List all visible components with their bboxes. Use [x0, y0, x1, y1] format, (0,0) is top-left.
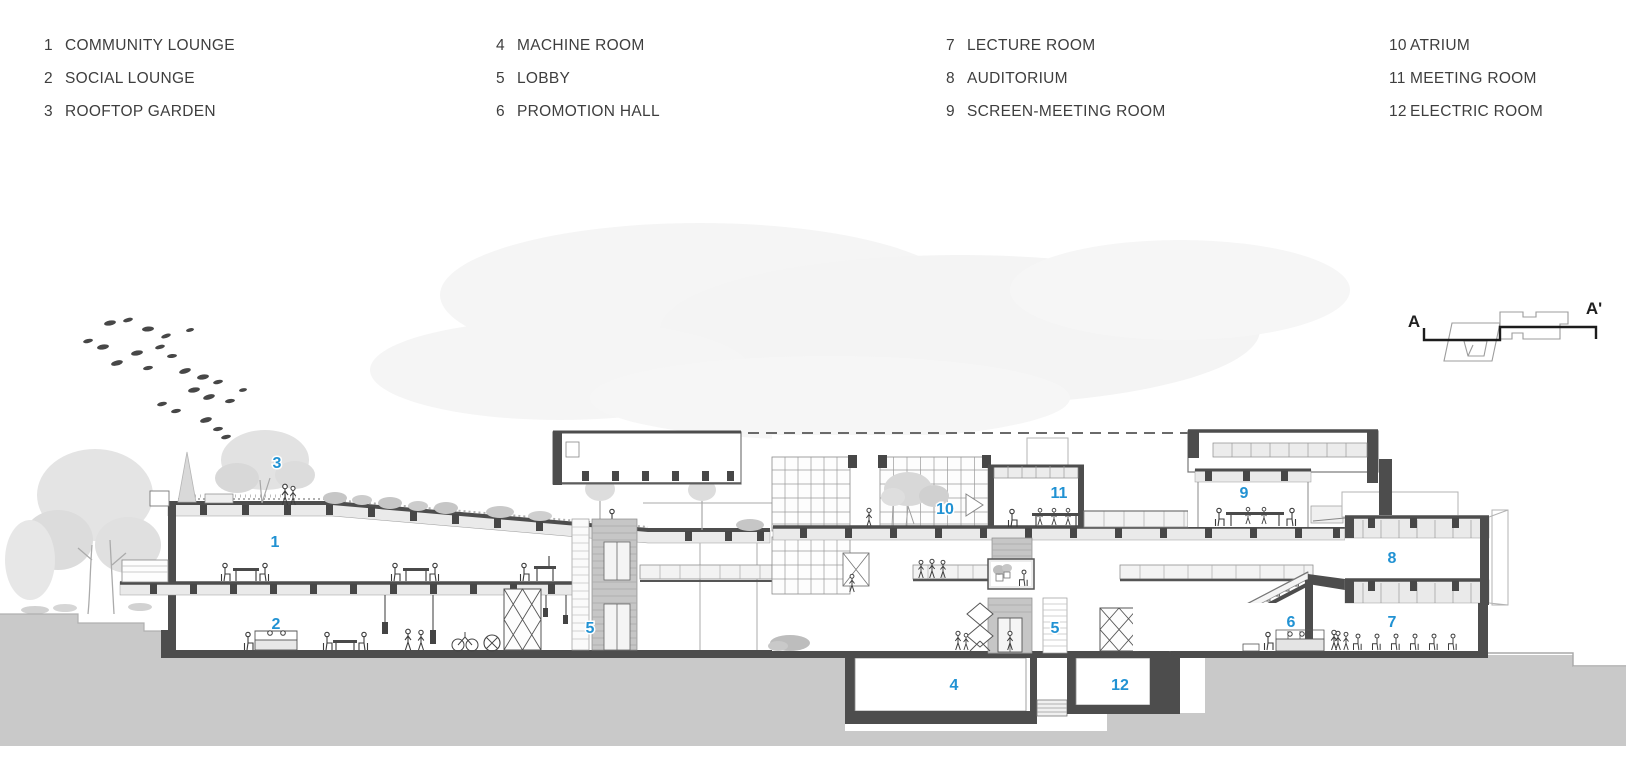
legend-item-number: 6 — [496, 95, 517, 128]
key-plan: A A' — [1408, 299, 1602, 361]
room-number-label: 11 — [1051, 485, 1068, 502]
sky-clouds — [370, 223, 1350, 440]
legend-item: 3ROOFTOP GARDEN — [44, 95, 235, 128]
legend-item-number: 12 — [1389, 95, 1410, 128]
basement — [845, 655, 1180, 724]
room-number-label: 2 — [272, 616, 281, 633]
legend-item: 10ATRIUM — [1389, 29, 1543, 62]
legend-item-number: 9 — [946, 95, 967, 128]
legend-item-number: 8 — [946, 62, 967, 95]
legend-item-label: AUDITORIUM — [967, 62, 1068, 95]
legend-item: 1COMMUNITY LOUNGE — [44, 29, 235, 62]
legend-item-label: SCREEN-MEETING ROOM — [967, 95, 1166, 128]
pine-tree — [178, 452, 196, 502]
birds-flock-icon — [83, 317, 248, 440]
legend-item-number: 10 — [1389, 29, 1410, 62]
legend-item-number: 1 — [44, 29, 65, 62]
legend-item-label: COMMUNITY LOUNGE — [65, 29, 235, 62]
room-number-label: 4 — [950, 677, 959, 694]
building-section-drawing: A A' 3125101198675412 — [0, 0, 1626, 766]
left-exterior-wall — [168, 505, 176, 652]
legend-item-label: ROOFTOP GARDEN — [65, 95, 216, 128]
room-number-label: 8 — [1388, 550, 1397, 567]
legend-item: 8AUDITORIUM — [946, 62, 1166, 95]
legend-item: 4MACHINE ROOM — [496, 29, 660, 62]
legend-item-label: LOBBY — [517, 62, 570, 95]
balcony-railing — [122, 560, 168, 582]
legend-item-number: 2 — [44, 62, 65, 95]
legend-column-1: 1COMMUNITY LOUNGE 2SOCIAL LOUNGE 3ROOFTO… — [44, 29, 235, 128]
legend-item-label: MEETING ROOM — [1410, 62, 1537, 95]
machine-room — [855, 658, 1026, 711]
section-marker-a-prime: A' — [1586, 299, 1602, 318]
legend-item: 5LOBBY — [496, 62, 660, 95]
legend-item-number: 4 — [496, 29, 517, 62]
legend-item: 11MEETING ROOM — [1389, 62, 1543, 95]
legend-item: 7LECTURE ROOM — [946, 29, 1166, 62]
room-number-label: 9 — [1240, 485, 1249, 502]
legend-item-label: LECTURE ROOM — [967, 29, 1095, 62]
legend-item-number: 3 — [44, 95, 65, 128]
legend-item: 6PROMOTION HALL — [496, 95, 660, 128]
room-number-label: 12 — [1111, 677, 1129, 694]
room-number-label: 7 — [1388, 614, 1397, 631]
room-number-label: 5 — [1051, 620, 1060, 637]
legend-item-label: ELECTRIC ROOM — [1410, 95, 1543, 128]
room-number-label: 6 — [1287, 614, 1296, 631]
legend-item-label: MACHINE ROOM — [517, 29, 645, 62]
room-number-label: 10 — [936, 501, 954, 518]
room-number-label: 3 — [273, 455, 282, 472]
legend-item: 12ELECTRIC ROOM — [1389, 95, 1543, 128]
legend-item-number: 7 — [946, 29, 967, 62]
legend-item: 9SCREEN-MEETING ROOM — [946, 95, 1166, 128]
legend-column-4: 10ATRIUM 11MEETING ROOM 12ELECTRIC ROOM — [1389, 29, 1543, 128]
legend-item: 2SOCIAL LOUNGE — [44, 62, 235, 95]
legend-item-number: 11 — [1389, 62, 1410, 95]
legend-item-label: ATRIUM — [1410, 29, 1470, 62]
legend-item-number: 5 — [496, 62, 517, 95]
room-number-label: 1 — [271, 534, 280, 551]
legend-item-label: SOCIAL LOUNGE — [65, 62, 195, 95]
legend-column-2: 4MACHINE ROOM 5LOBBY 6PROMOTION HALL — [496, 29, 660, 128]
legend-column-3: 7LECTURE ROOM 8AUDITORIUM 9SCREEN-MEETIN… — [946, 29, 1166, 128]
room-number-label: 5 — [586, 620, 595, 637]
legend-item-label: PROMOTION HALL — [517, 95, 660, 128]
section-marker-a: A — [1408, 312, 1420, 331]
